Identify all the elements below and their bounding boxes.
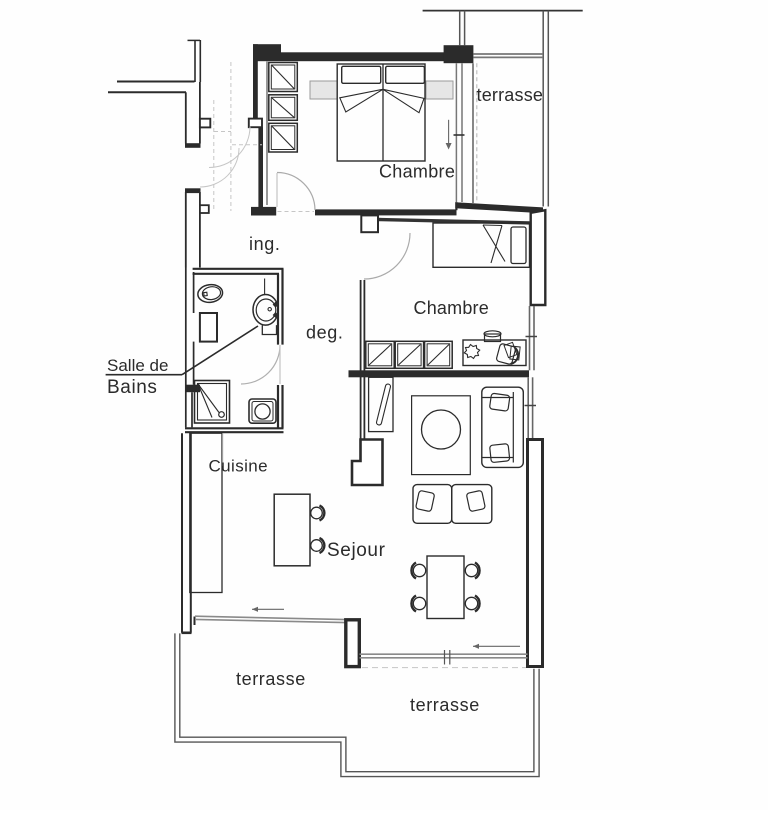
- svg-text:ing.: ing.: [249, 234, 280, 254]
- svg-text:Chambre: Chambre: [379, 162, 455, 182]
- svg-text:Sejour: Sejour: [327, 540, 386, 561]
- svg-text:Cuisine: Cuisine: [209, 457, 269, 476]
- svg-text:Salle de: Salle de: [107, 356, 168, 375]
- svg-text:terrasse: terrasse: [410, 695, 480, 715]
- svg-text:terrasse: terrasse: [477, 85, 544, 105]
- svg-text:deg.: deg.: [306, 323, 343, 343]
- svg-text:Chambre: Chambre: [414, 298, 489, 318]
- svg-text:terrasse: terrasse: [236, 669, 306, 689]
- svg-text:Bains: Bains: [107, 377, 158, 398]
